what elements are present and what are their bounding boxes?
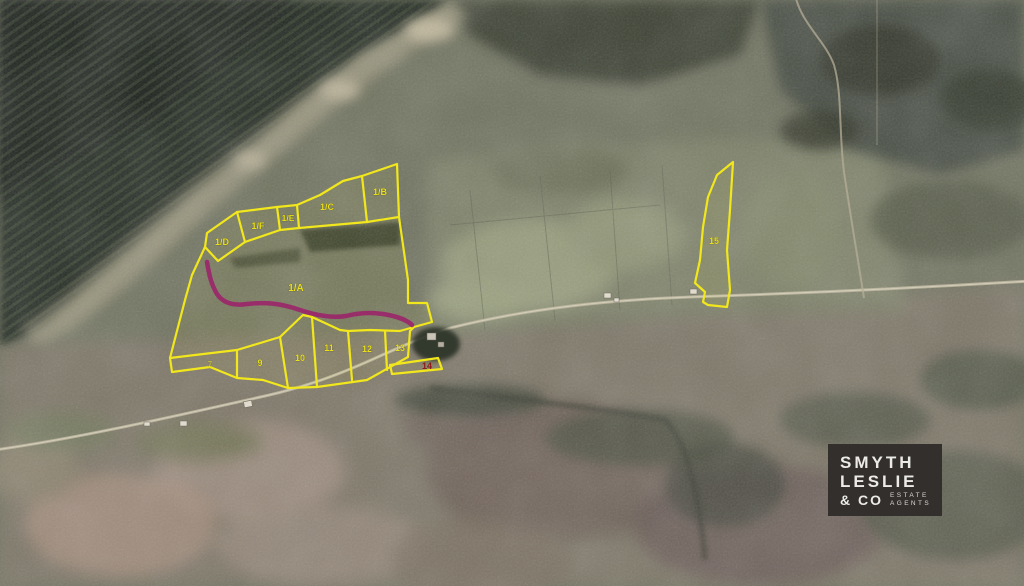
logo-tagline: ESTATE AGENTS bbox=[890, 492, 931, 508]
parcel-label-10: 10 bbox=[295, 353, 305, 363]
logo-tagline-estate: ESTATE bbox=[890, 492, 929, 499]
parcel-label-1a: 1/A bbox=[288, 283, 304, 294]
parcel-label-1b: 1/B bbox=[373, 187, 388, 197]
parcel-label-11: 11 bbox=[324, 343, 334, 353]
aerial-map-screenshot: 1/A 1/B 1/C 1/D 1/E 1/F 7 9 10 11 12 13 … bbox=[0, 0, 1024, 586]
parcel-label-14: 14 bbox=[422, 361, 432, 371]
parcel-label-9: 9 bbox=[257, 358, 262, 368]
logo-tagline-agents: AGENTS bbox=[890, 500, 931, 507]
parcel-label-13: 13 bbox=[395, 343, 405, 353]
logo-line-leslie: LESLIE bbox=[840, 472, 942, 491]
parcel-label-1d: 1/D bbox=[215, 237, 230, 247]
logo-line-smyth: SMYTH bbox=[840, 453, 942, 472]
parcel-label-1e: 1/E bbox=[282, 213, 295, 223]
parcel-label-1c: 1/C bbox=[320, 202, 335, 212]
parcel-label-7: 7 bbox=[208, 360, 213, 369]
parcel-label-1f: 1/F bbox=[251, 221, 265, 231]
estate-agent-logo: SMYTH LESLIE & CO ESTATE AGENTS bbox=[828, 444, 942, 516]
parcel-label-15: 15 bbox=[709, 236, 719, 246]
parcel-label-12: 12 bbox=[362, 344, 372, 354]
logo-line-andco: & CO bbox=[840, 492, 883, 508]
